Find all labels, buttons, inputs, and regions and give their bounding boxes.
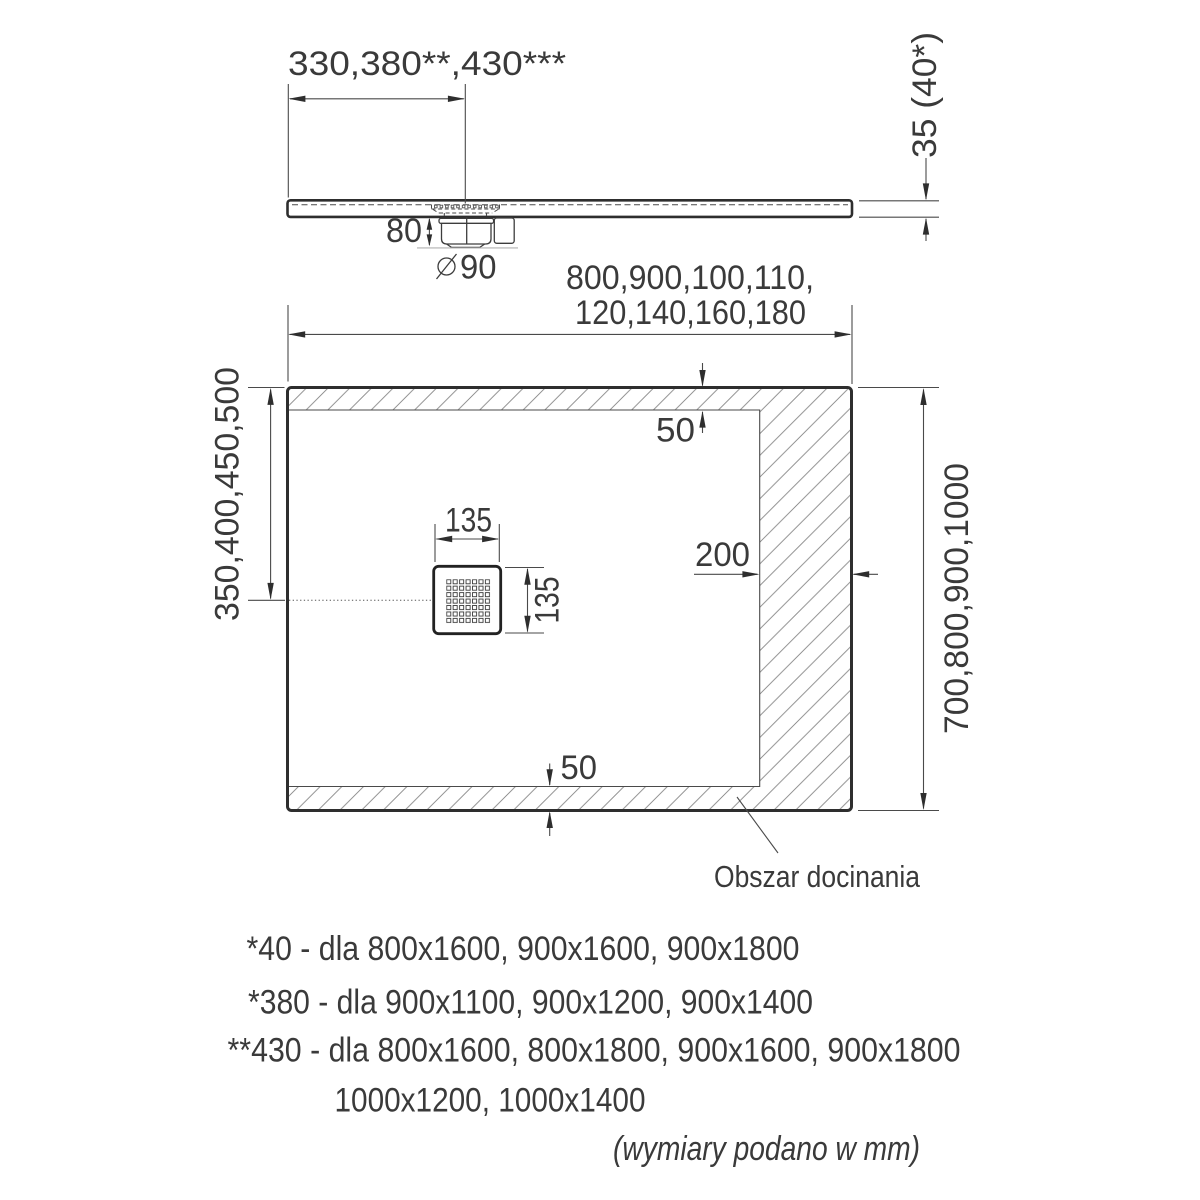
svg-text:35 (40*): 35 (40*) [906, 32, 944, 158]
svg-text:50: 50 [561, 749, 598, 787]
svg-text:800,900,100,110,: 800,900,100,110, [566, 259, 814, 297]
svg-text:200: 200 [695, 536, 750, 574]
svg-text:Obszar docinania: Obszar docinania [714, 859, 921, 894]
svg-text:350,400,450,500: 350,400,450,500 [209, 367, 247, 621]
svg-text:*380 - dla 900x1100, 900x1200,: *380 - dla 900x1100, 900x1200, 900x1400 [248, 984, 813, 1022]
svg-text:135: 135 [529, 577, 567, 624]
svg-text:*40 - dla 800x1600, 900x1600,: *40 - dla 800x1600, 900x1600, 900x1800 [247, 930, 800, 968]
svg-text:135: 135 [445, 502, 492, 540]
svg-text:**430 - dla 800x1600, 800x1800: **430 - dla 800x1600, 800x1800, 900x1600… [228, 1032, 961, 1070]
svg-text:1000x1200, 1000x1400: 1000x1200, 1000x1400 [335, 1082, 646, 1120]
svg-text:330,380**,430***: 330,380**,430*** [288, 45, 566, 83]
svg-text:120,140,160,180: 120,140,160,180 [575, 294, 806, 332]
svg-text:80: 80 [386, 212, 422, 250]
svg-text:50: 50 [656, 412, 695, 450]
svg-text:(wymiary podano w mm): (wymiary podano w mm) [613, 1130, 920, 1168]
svg-text:90: 90 [460, 249, 497, 287]
svg-text:700,800,900,1000: 700,800,900,1000 [938, 463, 976, 734]
